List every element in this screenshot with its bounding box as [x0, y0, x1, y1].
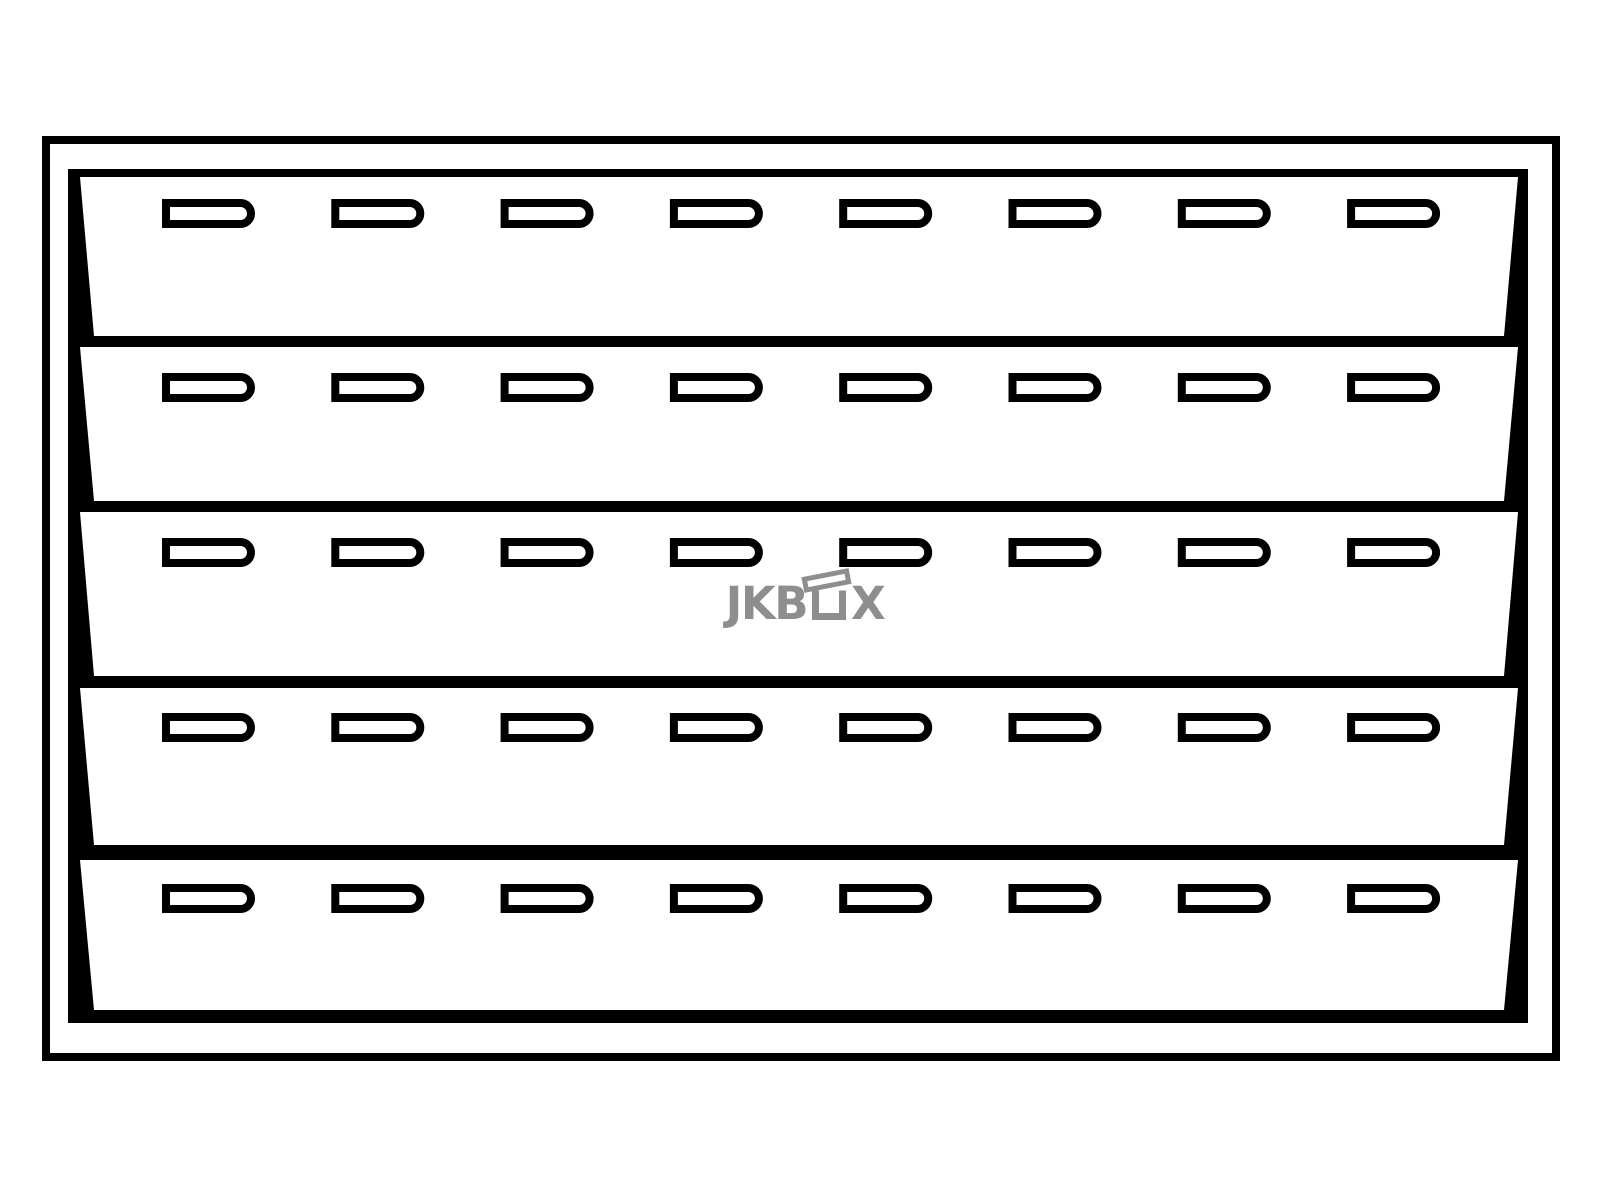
tray-5-slot-4 [674, 888, 759, 909]
tray-panel-4 [80, 688, 1518, 845]
diagram-page: JKB X [0, 0, 1600, 1200]
tray-3-slot-5 [843, 542, 928, 563]
tray-2-slot-6 [1013, 377, 1098, 398]
tray-1-slot-6 [1013, 203, 1098, 224]
tray-4-slot-2 [335, 717, 420, 738]
tray-3-slot-6 [1013, 542, 1098, 563]
tray-1-slot-8 [1351, 203, 1436, 224]
tray-2-slot-5 [843, 377, 928, 398]
tray-1-slot-4 [674, 203, 759, 224]
tray-panel-1 [80, 177, 1518, 336]
tray-4-slot-8 [1351, 717, 1436, 738]
tray-3-slot-3 [505, 542, 590, 563]
tray-2-slot-4 [674, 377, 759, 398]
tray-5-slot-1 [166, 888, 251, 909]
tray-panel-5 [80, 860, 1518, 1010]
tray-3-slot-4 [674, 542, 759, 563]
watermark-text-jkb: JKB [723, 577, 807, 630]
storage-rack-line-drawing: JKB X [0, 0, 1600, 1200]
watermark-logo: JKB X [723, 571, 885, 630]
tray-panel-2 [80, 347, 1518, 501]
tray-5-slot-5 [843, 888, 928, 909]
tray-1-slot-1 [166, 203, 251, 224]
tray-3-slot-2 [335, 542, 420, 563]
tray-2-slot-2 [335, 377, 420, 398]
watermark-text-x: X [851, 577, 885, 630]
tray-5-slot-8 [1351, 888, 1436, 909]
tray-4-slot-5 [843, 717, 928, 738]
tray-2-slot-3 [505, 377, 590, 398]
tray-5-slot-7 [1182, 888, 1267, 909]
tray-4-slot-7 [1182, 717, 1267, 738]
tray-1-slot-3 [505, 203, 590, 224]
tray-3-slot-1 [166, 542, 251, 563]
tray-5-slot-3 [505, 888, 590, 909]
tray-1-slot-5 [843, 203, 928, 224]
tray-5-slot-6 [1013, 888, 1098, 909]
tray-2-slot-1 [166, 377, 251, 398]
tray-4-slot-4 [674, 717, 759, 738]
tray-1-slot-7 [1182, 203, 1267, 224]
tray-4-slot-6 [1013, 717, 1098, 738]
tray-3-slot-8 [1351, 542, 1436, 563]
tray-4-slot-1 [166, 717, 251, 738]
tray-1-slot-2 [335, 203, 420, 224]
tray-3-slot-7 [1182, 542, 1267, 563]
tray-2-slot-7 [1182, 377, 1267, 398]
tray-2-slot-8 [1351, 377, 1436, 398]
tray-4-slot-3 [505, 717, 590, 738]
tray-5-slot-2 [335, 888, 420, 909]
